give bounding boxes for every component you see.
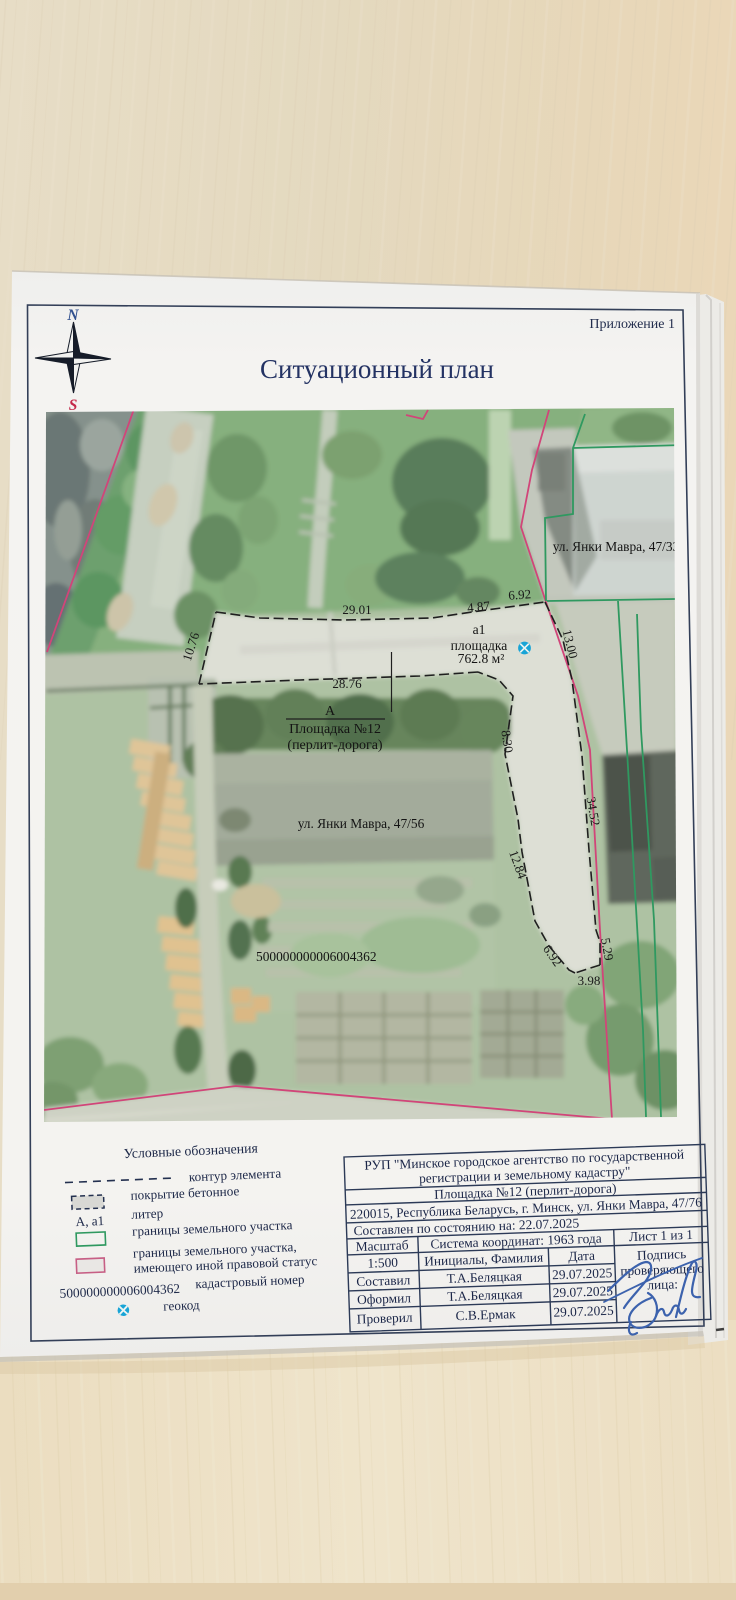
svg-text:литер: литер	[131, 1205, 164, 1221]
svg-text:а1: а1	[473, 622, 486, 637]
svg-text:Проверил: Проверил	[357, 1310, 414, 1327]
svg-text:геокод: геокод	[163, 1297, 200, 1314]
svg-text:(перлит-дорога): (перлит-дорога)	[287, 738, 383, 753]
svg-text:29.01: 29.01	[342, 602, 371, 617]
svg-text:Подпись: Подпись	[637, 1246, 687, 1263]
svg-text:1:500: 1:500	[367, 1255, 398, 1271]
svg-text:8.30: 8.30	[498, 729, 516, 754]
svg-text:29.07.2025: 29.07.2025	[552, 1265, 613, 1282]
svg-text:ул. Янки Мавра, 47/56: ул. Янки Мавра, 47/56	[298, 816, 425, 831]
svg-text:Площадка №12: Площадка №12	[289, 722, 381, 737]
svg-text:4.87: 4.87	[466, 598, 491, 615]
svg-text:Приложение 1: Приложение 1	[589, 317, 675, 332]
svg-text:500000000006004362: 500000000006004362	[256, 949, 377, 964]
svg-text:28.76: 28.76	[332, 676, 362, 691]
svg-text:Лист 1 из 1: Лист 1 из 1	[629, 1227, 693, 1244]
svg-text:ул. Янки Мавра, 47/33: ул. Янки Мавра, 47/33	[553, 539, 680, 554]
svg-text:А: А	[325, 704, 336, 719]
svg-text:762.8 м²: 762.8 м²	[458, 651, 505, 666]
svg-text:Т.А.Беляцкая: Т.А.Беляцкая	[447, 1286, 523, 1304]
svg-text:29.07.2025: 29.07.2025	[553, 1303, 614, 1320]
svg-text:С.В.Ермак: С.В.Ермак	[455, 1306, 516, 1323]
svg-text:Составил: Составил	[356, 1272, 411, 1289]
svg-text:А, а1: А, а1	[75, 1213, 104, 1229]
svg-text:N: N	[66, 307, 79, 324]
svg-text:Масштаб: Масштаб	[355, 1237, 409, 1254]
svg-text:Ситуационный план: Ситуационный план	[260, 354, 494, 384]
svg-text:Дата: Дата	[568, 1248, 595, 1264]
svg-text:Оформил: Оформил	[357, 1290, 412, 1307]
svg-text:3.98: 3.98	[578, 973, 601, 988]
svg-text:Т.А.Беляцкая: Т.А.Беляцкая	[446, 1268, 522, 1286]
svg-text:29.07.2025: 29.07.2025	[552, 1283, 613, 1300]
svg-text:6.92: 6.92	[508, 586, 532, 603]
svg-text:S: S	[69, 397, 78, 414]
